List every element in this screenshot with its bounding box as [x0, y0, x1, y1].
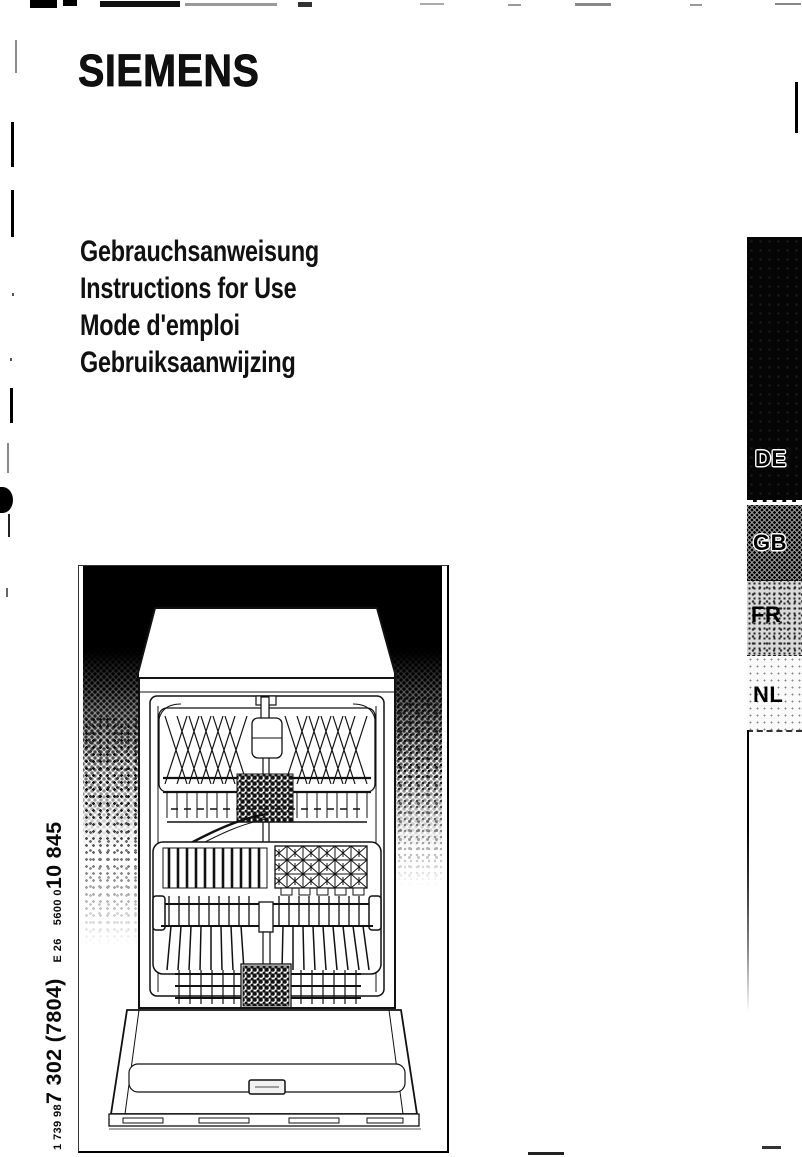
scan-mark: [100, 1, 180, 7]
language-tab-fr-label: FR: [751, 604, 781, 626]
scan-mark: [795, 82, 798, 133]
scan-mark: [11, 190, 14, 237]
scan-mark: [10, 358, 12, 361]
cover-photo-box: [78, 565, 449, 1153]
scan-mark: [0, 487, 13, 513]
dishwasher-illustration: [79, 566, 447, 1151]
tab-column-rule: [747, 730, 749, 1012]
material-number-prefix: 5600 0: [52, 889, 64, 925]
scan-mark: [762, 1146, 781, 1149]
scan-mark: [508, 4, 521, 6]
language-tab-de: DE: [747, 237, 802, 502]
language-tab-nl-label: NL: [753, 684, 783, 706]
material-number: 10 845: [42, 822, 67, 890]
scan-mark: [7, 443, 9, 473]
scan-mark: [528, 1152, 564, 1155]
scan-mark: [775, 3, 801, 5]
scan-mark: [30, 0, 57, 8]
scan-mark: [8, 514, 10, 537]
title-block: Gebrauchsanweisung Instructions for Use …: [80, 233, 386, 381]
scan-mark: [6, 588, 8, 597]
language-tab-column: DE GB FR NL: [747, 237, 802, 732]
scan-mark: [12, 293, 14, 296]
scan-mark: [575, 3, 611, 6]
edition-code: E 26: [52, 938, 64, 962]
title-dutch: Gebruiksaanwijzing: [80, 344, 319, 381]
manual-cover-page: SIEMENS Gebrauchsanweisung Instructions …: [0, 0, 802, 1157]
language-tab-gb: GB: [747, 505, 802, 581]
language-tab-fr: FR: [747, 581, 802, 656]
scan-mark: [15, 40, 17, 73]
title-german: Gebrauchsanweisung: [80, 233, 319, 270]
scan-mark: [63, 0, 77, 6]
scan-mark: [690, 4, 702, 6]
title-english: Instructions for Use: [80, 270, 319, 307]
order-number-prefix: 1 739 98: [52, 1104, 64, 1150]
print-code: 1 739 98 7 302 (7804) E 26 5600 0 10 845: [42, 850, 78, 1150]
scan-mark: [11, 122, 14, 167]
language-tab-nl: NL: [747, 656, 802, 732]
title-french: Mode d'emploi: [80, 307, 319, 344]
scan-mark: [185, 3, 277, 6]
language-tab-gb-label: GB: [753, 532, 787, 554]
scan-mark: [10, 388, 13, 423]
language-tab-de-label: DE: [755, 448, 787, 470]
brand-logo: SIEMENS: [78, 51, 259, 91]
order-number: 7 302 (7804): [42, 978, 67, 1104]
scan-mark: [420, 3, 444, 5]
scan-mark: [298, 2, 312, 7]
